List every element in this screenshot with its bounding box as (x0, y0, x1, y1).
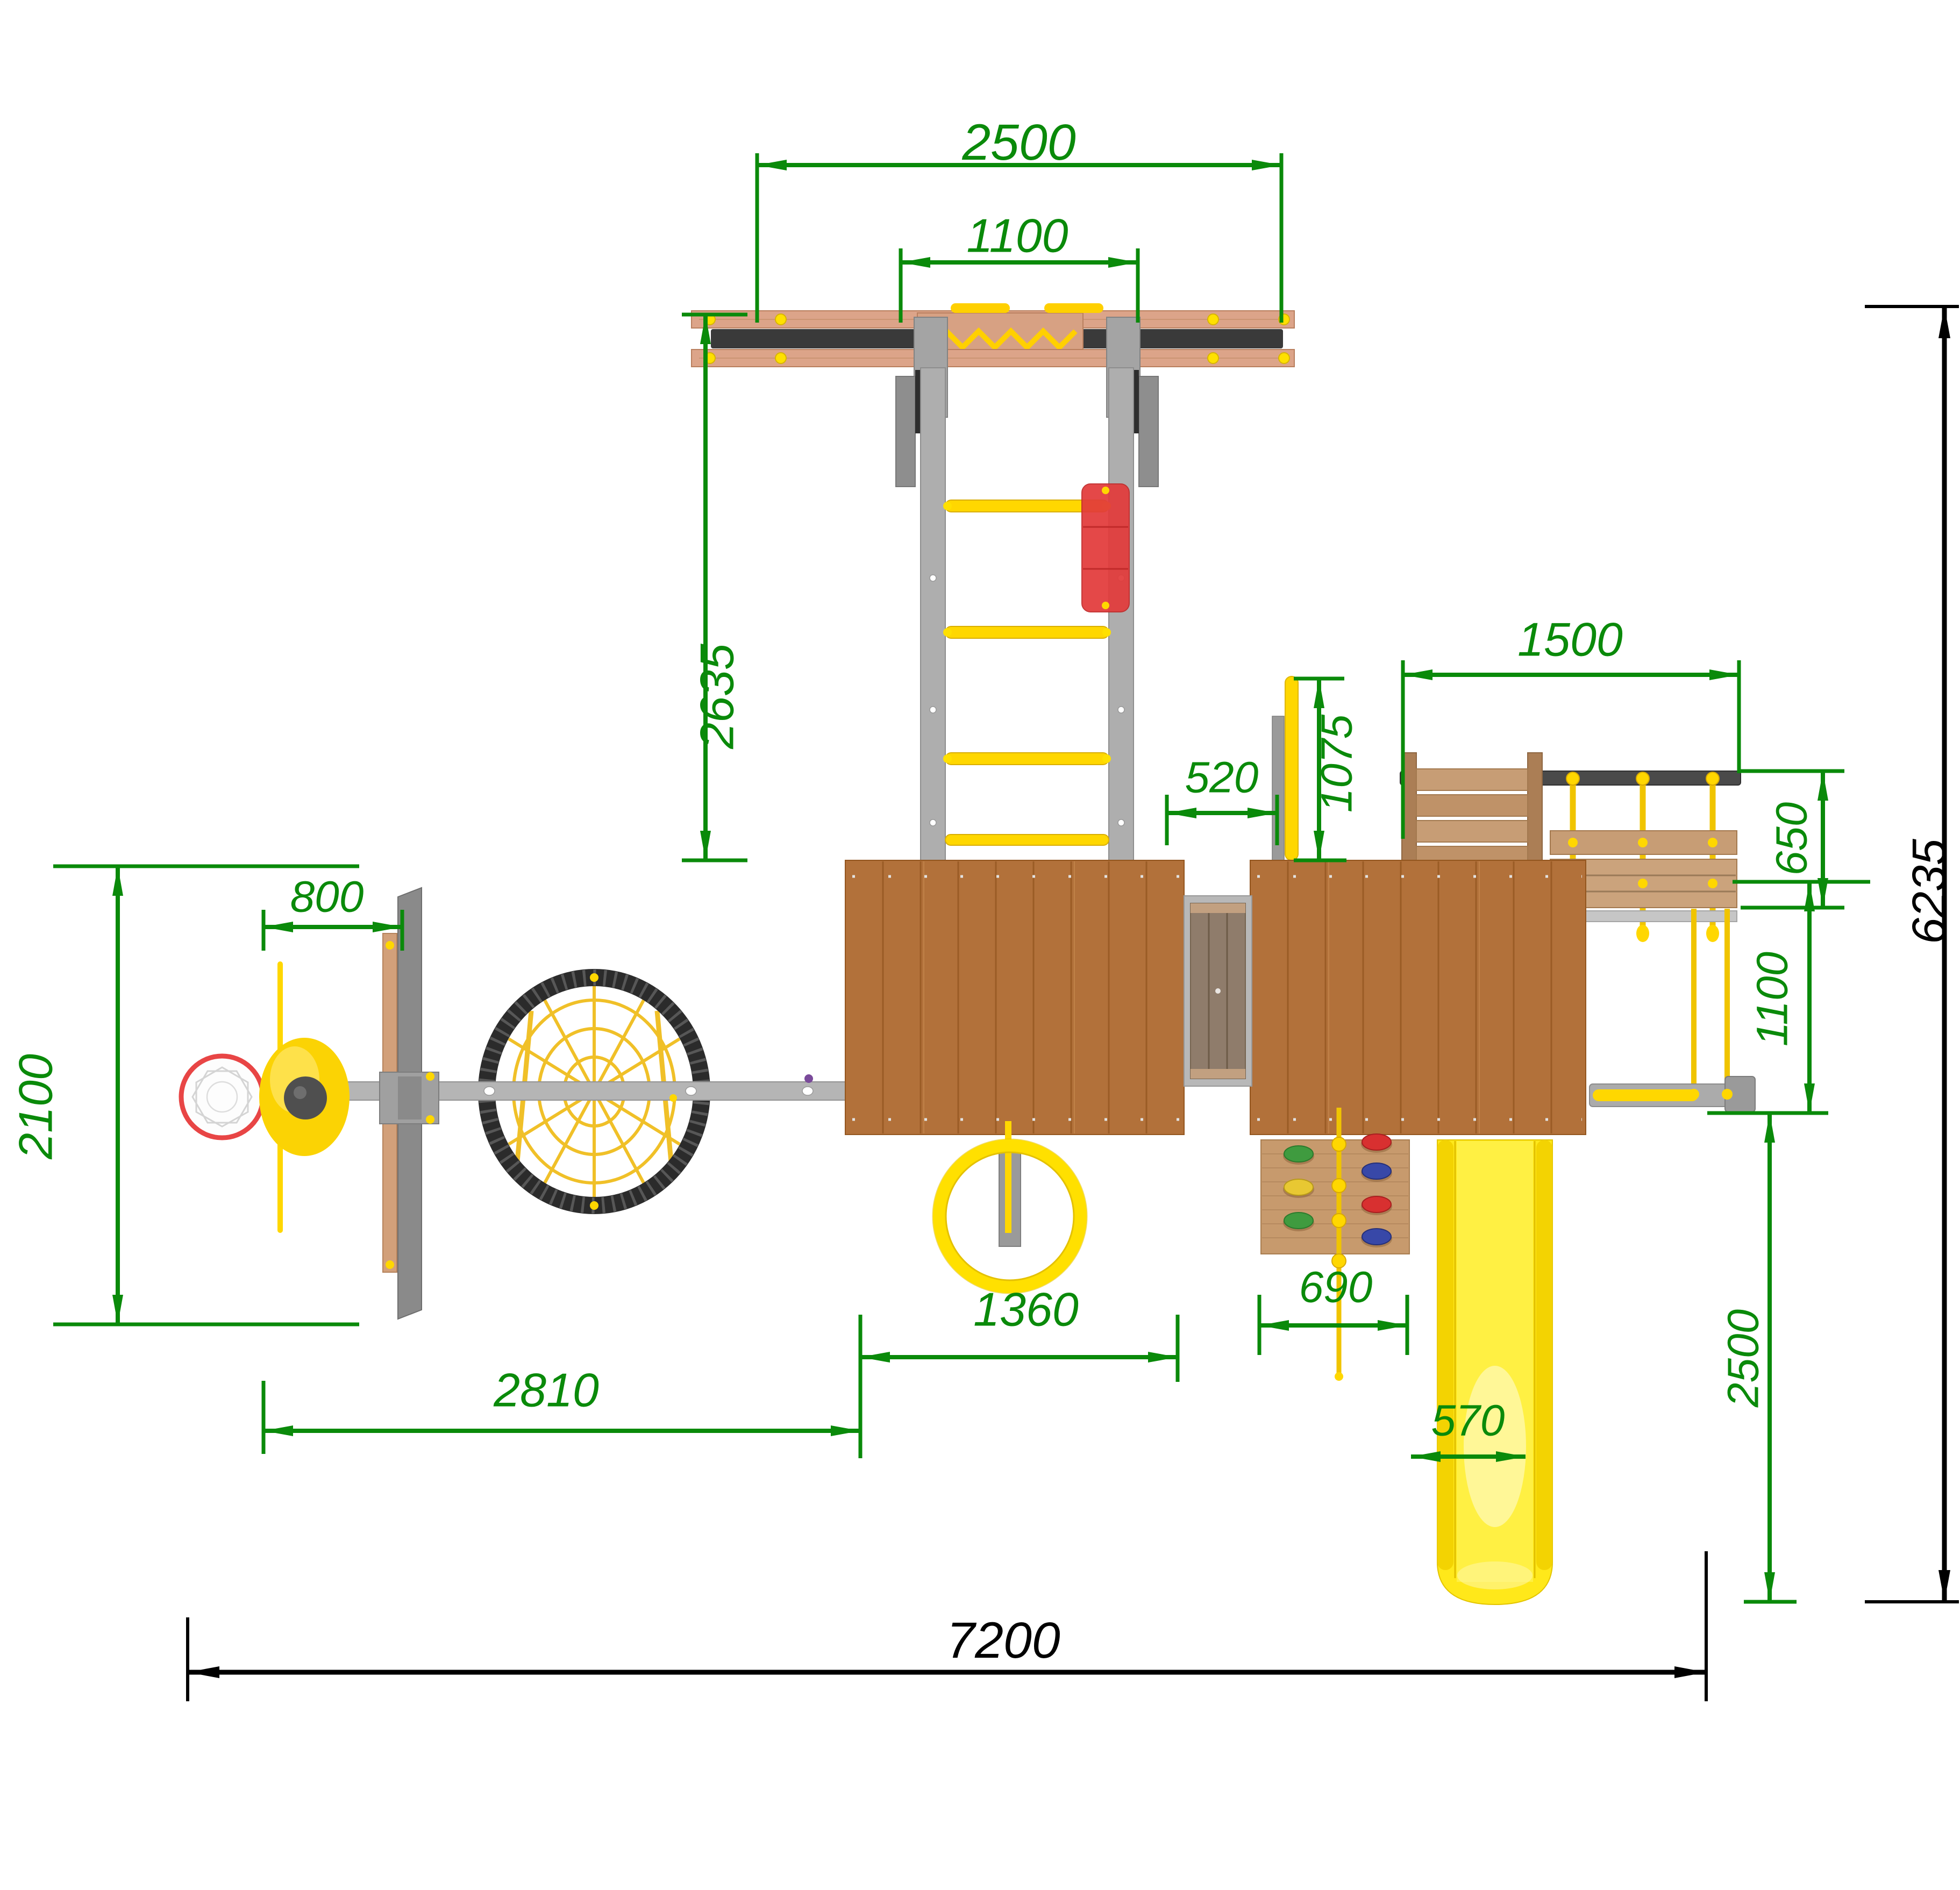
dim-label-top-width: 2500 (961, 114, 1076, 171)
dim-label-climb-wall-width: 690 (1299, 1263, 1373, 1312)
dim-label-slide-zone-depth: 2500 (1719, 1309, 1768, 1408)
plank-cap (386, 1260, 394, 1269)
rope-end (1722, 1089, 1733, 1100)
climb-hold-blue (1362, 1229, 1391, 1245)
dim-label-ladder-length: 2635 (690, 643, 743, 750)
dim-ladder-length (682, 315, 747, 860)
dim-label-left-zone-width: 2810 (493, 1363, 599, 1416)
climb-hold-green (1284, 1146, 1313, 1162)
dim-label-left-zone-depth: 2100 (9, 1054, 62, 1160)
dim-label-pole-offset: 1075 (1313, 714, 1362, 812)
ladder-rail-left (921, 368, 945, 860)
assembly-beam-left (711, 329, 916, 348)
monkey-top-bar (951, 303, 1010, 313)
beam-bolt-hole (802, 1087, 813, 1095)
grip-panel-cap (1102, 602, 1109, 609)
plank-cap (386, 941, 394, 950)
slide (1437, 1140, 1552, 1604)
dim-label-upper-right-width: 1500 (1517, 612, 1623, 666)
balance-plank-assembly (380, 888, 439, 1319)
climb-hold-blue (1362, 1163, 1391, 1179)
dim-label-rope-ladder-depth: 650 (1767, 802, 1816, 876)
playground-top-view: 2500 1100 2635 1500 1075 520 650 800 210… (0, 0, 1960, 1890)
dim-walkway-gap (1167, 795, 1277, 845)
backboard-hub (284, 1076, 327, 1119)
monkey-top-bar (1044, 303, 1103, 313)
assembly-bracket-left (896, 376, 915, 487)
slide-end-sheen (1457, 1561, 1533, 1589)
assembly-bracket-right (1139, 376, 1158, 487)
dim-label-slide-width: 570 (1431, 1396, 1505, 1445)
beam-bolt-hole (686, 1087, 696, 1095)
grip-panel-cap (1102, 487, 1109, 494)
ring-swing (933, 1121, 1087, 1293)
swing-frame (1590, 909, 1755, 1112)
plank-cross-block-shadow (398, 1076, 422, 1119)
walkway-bridge (1184, 896, 1252, 1086)
backboard-hub-highlight (294, 1086, 307, 1099)
beam-bolt-hole (484, 1087, 495, 1095)
block-cap (426, 1072, 434, 1081)
wall-ladder (921, 368, 1134, 860)
dim-label-overall-width: 7200 (946, 1612, 1060, 1669)
climb-hold-red (1362, 1134, 1391, 1150)
slide-rail-right (1536, 1140, 1552, 1570)
rope-end (1688, 1089, 1699, 1100)
climb-hold-red (1362, 1196, 1391, 1213)
rail-bolt-holes (930, 575, 1124, 826)
monkey-bar-assembly (692, 303, 1294, 487)
hoop-ring (181, 1056, 263, 1138)
bridge-bolt (1215, 988, 1221, 994)
dim-label-ladder-span: 1100 (966, 209, 1068, 262)
platform-right (1250, 860, 1586, 1135)
platform-left (845, 860, 1184, 1135)
dim-label-walkway-gap: 520 (1185, 753, 1259, 802)
slide-rail-left (1437, 1140, 1453, 1570)
ladder-rail-right (1109, 368, 1134, 860)
ring-swing-rope (1005, 1121, 1011, 1233)
red-grip-panel (1082, 484, 1129, 612)
bridge-step-bottom (1191, 1069, 1245, 1079)
ramp-rail-right (1528, 753, 1542, 860)
dim-label-swing-zone-depth: 1100 (1748, 952, 1797, 1046)
fire-pole (1285, 676, 1298, 860)
rope-end (1335, 1372, 1343, 1381)
climb-hold-green (1284, 1213, 1313, 1229)
climbing-wall (1261, 1108, 1409, 1381)
ramp-slats (1416, 769, 1528, 860)
dim-label-hoop-offset: 800 (290, 873, 364, 922)
slide-sheen (1464, 1366, 1526, 1527)
drawing-canvas: 2500 1100 2635 1500 1075 520 650 800 210… (0, 0, 1960, 1890)
dim-label-ring-offset: 1360 (973, 1282, 1079, 1336)
swing-seat-bar (1593, 1089, 1698, 1101)
beam-cap (669, 1094, 677, 1102)
bridge-step-top (1191, 903, 1245, 913)
left-support-beam (289, 1074, 849, 1102)
climb-hold-yellow (1284, 1179, 1313, 1195)
block-cap (426, 1115, 434, 1124)
rope-hook-purple (804, 1074, 813, 1083)
dim-label-overall-depth: 6235 (1902, 838, 1955, 944)
basketball-hoop (181, 961, 350, 1233)
dim-overall-depth (1865, 306, 1959, 1602)
